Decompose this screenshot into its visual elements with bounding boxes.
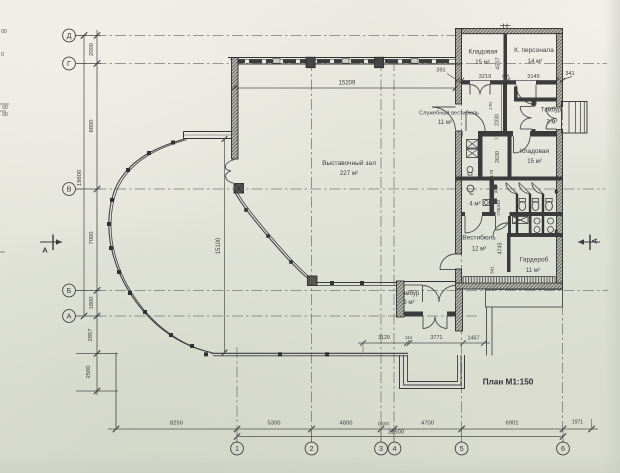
svg-text:3771: 3771 — [431, 335, 443, 341]
svg-text:3129: 3129 — [378, 335, 390, 341]
svg-text:2500: 2500 — [86, 366, 92, 379]
svg-text:3: 3 — [379, 444, 383, 453]
svg-text:2330: 2330 — [495, 114, 501, 126]
svg-text:227 м²: 227 м² — [340, 170, 358, 177]
svg-text:341: 341 — [565, 71, 574, 77]
svg-text:15100: 15100 — [216, 237, 222, 254]
svg-text:170: 170 — [496, 208, 501, 216]
svg-text:11 м²: 11 м² — [526, 268, 540, 274]
svg-text:15 м²: 15 м² — [527, 159, 541, 165]
svg-text:11 м²: 11 м² — [438, 120, 452, 126]
svg-text:А: А — [67, 312, 72, 321]
svg-text:5300: 5300 — [268, 421, 281, 427]
svg-text:114: 114 — [405, 335, 413, 340]
svg-text:15209: 15209 — [339, 81, 356, 87]
svg-text:341: 341 — [490, 266, 495, 274]
svg-text:Выставочный зал: Выставочный зал — [322, 159, 376, 167]
svg-text:0: 0 — [1, 52, 4, 58]
svg-text:3219: 3219 — [479, 74, 491, 80]
svg-text:15 м²: 15 м² — [475, 60, 489, 66]
svg-text:170: 170 — [502, 74, 510, 79]
svg-text:6: 6 — [561, 444, 565, 453]
svg-text:План М1:150: План М1:150 — [483, 378, 534, 387]
svg-text:3145: 3145 — [527, 74, 539, 80]
svg-text:8800: 8800 — [89, 120, 95, 133]
svg-text:Б: Б — [67, 286, 72, 295]
svg-text:4507: 4507 — [496, 57, 502, 69]
svg-text:14 м²: 14 м² — [528, 59, 542, 65]
svg-text:00: 00 — [2, 112, 8, 118]
svg-text:Г: Г — [67, 59, 71, 68]
svg-text:6901: 6901 — [506, 421, 519, 427]
svg-text:4700: 4700 — [421, 421, 434, 427]
svg-text:Служебный вестибюль: Служебный вестибюль — [419, 110, 479, 117]
svg-text:2000: 2000 — [89, 43, 95, 56]
svg-text:(800): (800) — [378, 421, 390, 427]
svg-text:Кладовая: Кладовая — [520, 148, 550, 155]
svg-text:12 м²: 12 м² — [472, 247, 486, 253]
svg-text:4800: 4800 — [340, 421, 353, 427]
svg-text:2630: 2630 — [495, 151, 501, 163]
svg-text:391: 391 — [436, 68, 445, 74]
svg-text:К. персонала: К. персонала — [514, 47, 554, 54]
svg-text:4745: 4745 — [498, 243, 504, 255]
svg-text:7000: 7000 — [89, 232, 95, 245]
svg-text:Кладовая: Кладовая — [468, 49, 498, 56]
svg-text:Гардероб: Гардероб — [520, 256, 549, 264]
svg-text:19800: 19800 — [77, 170, 83, 186]
svg-text:170: 170 — [494, 132, 499, 140]
svg-text:2: 2 — [310, 444, 314, 453]
svg-text:2857: 2857 — [88, 329, 94, 342]
svg-text:8250: 8250 — [170, 421, 183, 427]
svg-text:Д: Д — [67, 31, 72, 40]
svg-text:А: А — [590, 238, 599, 244]
svg-text:00: 00 — [1, 29, 7, 35]
svg-text:1340: 1340 — [496, 199, 501, 210]
svg-text:6 м²: 6 м² — [403, 300, 414, 306]
svg-text:22500: 22500 — [388, 430, 404, 436]
svg-text:170: 170 — [489, 169, 494, 177]
svg-text:В: В — [67, 185, 72, 194]
svg-text:991: 991 — [494, 185, 499, 193]
svg-text:А: А — [42, 246, 48, 255]
svg-text:Вестибюль: Вестибюль — [462, 234, 496, 242]
svg-text:1467: 1467 — [468, 336, 480, 342]
svg-text:4 м²: 4 м² — [469, 202, 480, 208]
svg-text:170: 170 — [488, 102, 493, 110]
svg-text:1: 1 — [235, 444, 239, 453]
svg-text:1800: 1800 — [89, 297, 95, 310]
svg-text:00: 00 — [2, 105, 8, 111]
svg-text:1971: 1971 — [572, 420, 583, 426]
svg-text:4: 4 — [393, 444, 397, 453]
svg-text:5: 5 — [460, 444, 464, 453]
